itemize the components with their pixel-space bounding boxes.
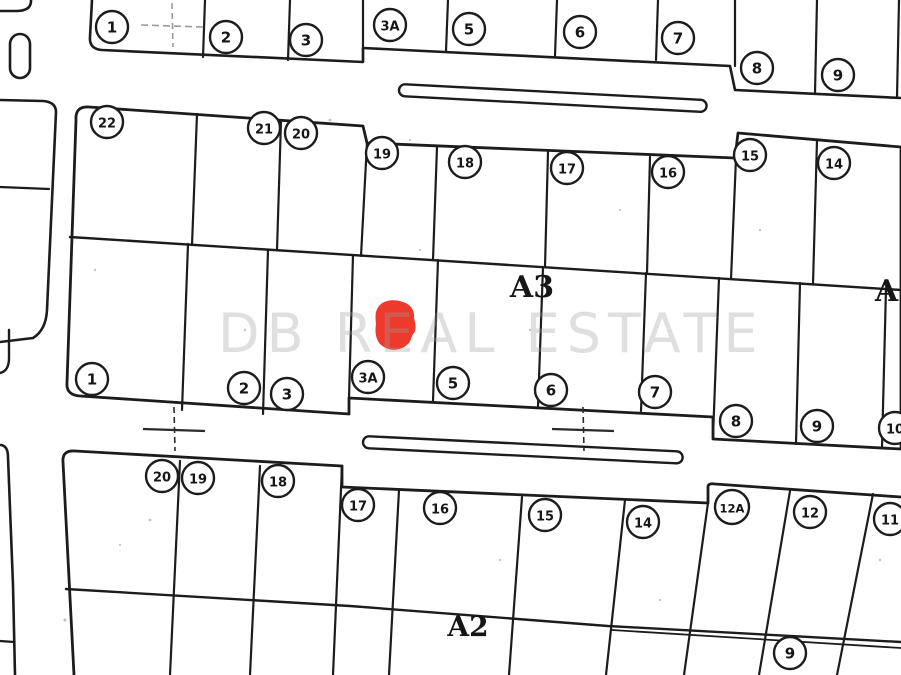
lot-badge-3: 3 [290,24,322,56]
svg-text:16: 16 [659,167,677,182]
lot-badge-14: 14 [818,147,850,179]
svg-text:10: 10 [886,423,901,438]
svg-text:2: 2 [239,380,249,398]
svg-text:21: 21 [255,123,273,138]
svg-text:6: 6 [546,382,556,400]
svg-text:17: 17 [558,163,576,178]
lot-badge-3A: 3A [374,9,406,41]
lot-badge-20: 20 [285,117,317,149]
svg-text:17: 17 [349,500,367,515]
svg-text:18: 18 [456,157,474,172]
svg-text:8: 8 [752,60,762,78]
lot-badge-2: 2 [210,21,242,53]
lot-badge-17: 17 [342,489,374,521]
svg-text:16: 16 [431,503,449,518]
svg-text:9: 9 [812,418,822,436]
lot-badge-22: 22 [91,106,123,138]
svg-text:20: 20 [153,471,171,486]
lot-badge-5: 5 [437,367,469,399]
lot-badge-15: 15 [529,499,561,531]
lot-badge-6: 6 [535,374,567,406]
lot-badge-6: 6 [564,16,596,48]
lot-badge-17: 17 [551,152,583,184]
lot-badge-1: 1 [96,11,128,43]
plat-map: DB REAL ESTATE 1233A56789222120191817161… [0,0,901,675]
svg-text:5: 5 [448,375,458,393]
lot-badge-16: 16 [424,492,456,524]
svg-text:2: 2 [221,29,231,47]
lot-badge-5: 5 [453,13,485,45]
svg-text:15: 15 [536,510,554,525]
svg-text:3: 3 [301,32,311,50]
a3-block [67,107,901,449]
survey-cross [141,3,203,47]
lot-badge-20: 20 [146,460,178,492]
svg-text:3: 3 [282,386,292,404]
watermark-text: DB REAL ESTATE [218,302,765,365]
road-median-strip-lower [363,436,683,464]
block-label-A3: A3 [509,270,554,305]
svg-text:5: 5 [464,21,474,39]
road-median-strip-upper [399,84,707,112]
svg-text:3A: 3A [380,20,399,35]
svg-text:11: 11 [881,514,899,529]
top-row-block [90,0,901,98]
lot-badge-9: 9 [822,59,854,91]
svg-text:12: 12 [801,507,819,522]
svg-text:22: 22 [98,117,116,132]
svg-text:1: 1 [87,371,97,389]
lot-badge-18: 18 [449,146,481,178]
lot-badge-14: 14 [627,506,659,538]
lot-badge-18: 18 [262,465,294,497]
lot-badge-19: 19 [182,462,214,494]
lot-badge-10: 10 [879,412,901,444]
lot-badge-7: 7 [662,22,694,54]
lot-badge-15: 15 [734,139,766,171]
svg-text:8: 8 [731,413,741,431]
lot-badge-12A: 12A [715,490,749,524]
lot-badge-1: 1 [76,363,108,395]
svg-text:1: 1 [107,19,117,37]
lot-badge-9: 9 [774,637,806,669]
lot-badge-12: 12 [794,496,826,528]
survey-cross [143,407,205,451]
lot-badge-11: 11 [874,503,901,535]
lot-badge-21: 21 [248,112,280,144]
lot-badge-3: 3 [271,378,303,410]
lot-badge-16: 16 [652,156,684,188]
lot-badge-3A: 3A [352,361,384,393]
svg-text:6: 6 [575,24,585,42]
svg-text:20: 20 [292,128,310,143]
lot-badge-8: 8 [720,405,752,437]
lot-badge-8: 8 [741,52,773,84]
svg-text:15: 15 [741,150,759,165]
svg-text:18: 18 [269,476,287,491]
block-label-A2: A2 [446,610,488,643]
svg-text:12A: 12A [720,502,745,516]
plat-map-viewer: DB REAL ESTATE 1233A56789222120191817161… [0,0,901,675]
svg-text:9: 9 [833,67,843,85]
svg-text:19: 19 [373,148,391,163]
left-partial-lots [0,0,56,675]
lot-badge-19: 19 [366,137,398,169]
svg-text:3A: 3A [358,372,377,387]
svg-text:7: 7 [650,384,660,402]
block-label-A3: A3 [874,274,901,309]
svg-text:19: 19 [189,473,207,488]
svg-text:9: 9 [785,645,795,663]
svg-text:14: 14 [634,517,652,532]
lot-badge-7: 7 [639,376,671,408]
lot-badge-9: 9 [801,410,833,442]
survey-cross [552,407,614,451]
lot-badge-2: 2 [228,372,260,404]
svg-text:7: 7 [673,30,683,48]
svg-text:14: 14 [825,158,843,173]
